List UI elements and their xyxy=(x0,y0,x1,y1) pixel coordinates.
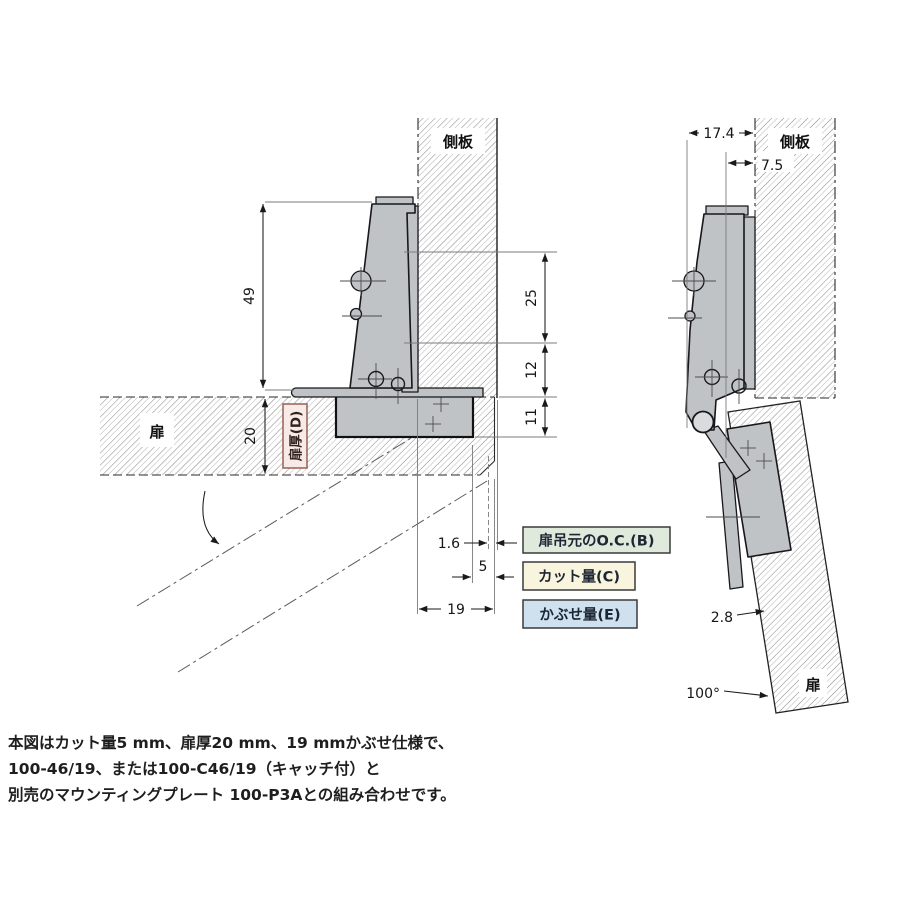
dim-2-8: 2.8 xyxy=(711,610,733,626)
footnote: 本図はカット量5 mm、扉厚20 mm、19 mmかぶせ仕様で、 100-46/… xyxy=(8,730,568,808)
legend-label-cut: カット量(C) xyxy=(538,569,620,586)
hinge-diagram-page: 49 20 25 12 11 1.6 5 19 扉厚(D) xyxy=(0,0,900,900)
left-side-panel-label: 側板 xyxy=(442,133,474,151)
dim-12: 12 xyxy=(524,361,540,379)
dim-49: 49 xyxy=(242,287,258,305)
legend-label-oc: 扉吊元のO.C.(B) xyxy=(539,532,655,550)
arm-small-boss xyxy=(351,309,362,320)
dim-5: 5 xyxy=(479,559,488,575)
left-cup-flange xyxy=(292,388,484,397)
right-side-panel-label: 側板 xyxy=(779,133,811,151)
left-side-panel xyxy=(418,118,497,398)
dim-25: 25 xyxy=(524,289,540,307)
left-hinge-cup xyxy=(336,395,473,437)
dim-19: 19 xyxy=(447,602,465,618)
footnote-line-3: 別売のマウンティングプレート 100-P3Aとの組み合わせです。 xyxy=(8,782,568,808)
footnote-line-2: 100-46/19、または100-C46/19（キャッチ付）と xyxy=(8,756,568,782)
dim-11: 11 xyxy=(524,408,540,426)
right-door-label: 扉 xyxy=(804,676,820,694)
hinge-pivot xyxy=(693,412,714,433)
right-view-open-section: 17.4 7.5 2.8 100° 側板 扉 xyxy=(668,118,848,713)
legend-label-overlay: かぶせ量(E) xyxy=(539,607,620,624)
swing-leader-arrow xyxy=(203,491,219,544)
left-door-label: 扉 xyxy=(148,423,164,441)
legend: 扉吊元のO.C.(B) カット量(C) かぶせ量(E) xyxy=(523,527,670,628)
dim-7-5: 7.5 xyxy=(761,158,783,174)
dim-1-6: 1.6 xyxy=(438,536,460,552)
door-thickness-label: 扉厚(D) xyxy=(288,411,305,462)
footnote-line-1: 本図はカット量5 mm、扉厚20 mm、19 mmかぶせ仕様で、 xyxy=(8,730,568,756)
left-hinge-arm xyxy=(340,197,415,404)
right-arm-small-boss xyxy=(685,311,695,321)
dim-angle-100: 100° xyxy=(686,686,720,702)
left-view-closed-section: 49 20 25 12 11 1.6 5 19 扉厚(D) xyxy=(100,118,557,672)
dim-20: 20 xyxy=(243,427,259,445)
dim-17-4: 17.4 xyxy=(703,126,734,142)
door-thickness-tag: 扉厚(D) xyxy=(283,404,307,468)
